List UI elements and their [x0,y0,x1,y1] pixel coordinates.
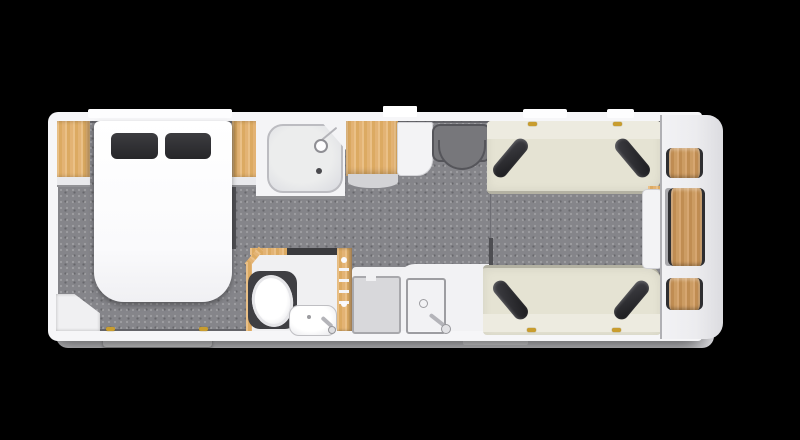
pillow-right [165,133,211,159]
basin-drain [307,315,311,319]
rear-table-small-bottom [666,278,703,310]
sofa-top-backrest [487,121,661,139]
tall-cabinet-ledge [348,174,398,188]
sink-drain [419,299,428,308]
bedroom-wall-stub [232,187,236,249]
towel-ladder-top-knob [341,257,347,263]
sink-tap-head [441,324,451,334]
appliance-unit [352,276,401,334]
rear-table-large [668,188,705,266]
hinge-marker [613,122,622,126]
door-marker [383,106,417,117]
hinge-marker [528,122,537,126]
hinge-marker [527,328,536,332]
window-marker-front [88,109,232,118]
window-marker-top-2 [607,109,634,118]
shower-drain [316,168,322,174]
shower-tray [267,124,343,193]
shower-head [314,139,328,153]
pillow-left [111,133,158,159]
tall-cabinet [346,121,398,176]
rear-table-small-top [666,148,703,178]
hinge-marker [612,328,621,332]
wardrobe-left-ledge [57,177,90,187]
hinge-marker [199,327,208,331]
appliance-handle [366,276,376,281]
side-unit [397,122,433,176]
washroom-door-opening [285,248,337,255]
caravan-floorplan [0,0,800,440]
hinge-marker [106,327,115,331]
towel-ladder-bottom-knob [341,301,347,307]
towel-ladder [339,260,349,304]
wardrobe-left [57,121,90,177]
window-marker-top-1 [523,109,567,118]
basin-tap-head [328,326,336,334]
sofa-bottom-backrest [483,314,661,332]
